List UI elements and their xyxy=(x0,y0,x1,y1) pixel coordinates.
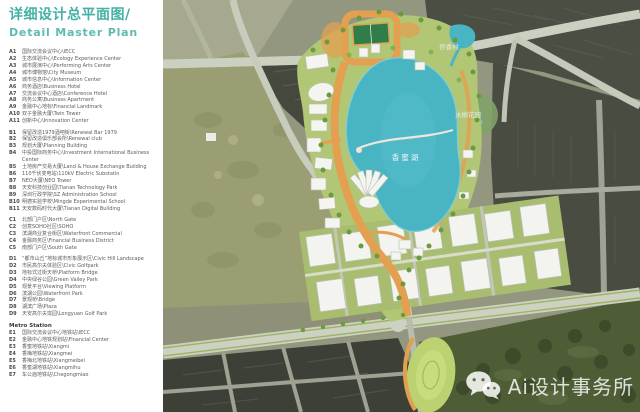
legend-item-id: A2 xyxy=(9,56,22,63)
legend-item: B5土地房产交易大厦\Land & House Exchange Buildin… xyxy=(9,164,159,171)
legend-item: D9天安高尔夫珑园\Longyuan Golf Park xyxy=(9,311,159,318)
legend-item-label: “都市山丘”地标城市形象展示区\Civic Hill Landscape xyxy=(22,256,159,263)
legend-item: B11天安数码时代大厦\Tianan Digital Building xyxy=(9,206,159,213)
legend-item-label: 中投国际商务中心\Investment International Busine… xyxy=(22,150,159,164)
legend-item-label: 土地房产交易大厦\Land & House Exchange Building xyxy=(22,164,159,171)
legend-item-label: 香梅地铁站\Xiangmei xyxy=(22,351,159,358)
legend-item-label: 明德实验学校\Mingde Experimental School xyxy=(22,199,159,206)
legend-item: C2创意SOHO社区\SOHO xyxy=(9,224,159,231)
legend-item: B10明德实验学校\Mingde Experimental School xyxy=(9,199,159,206)
legend-item: C3滨湖商业复合街区\Waterfront Commercial xyxy=(9,231,159,238)
legend-item-id: D4 xyxy=(9,277,22,284)
legend-item-label: 滨湖商业复合街区\Waterfront Commercial xyxy=(22,231,159,238)
legend-item-id: D5 xyxy=(9,284,22,291)
legend-section-E: E1国际交流会议中心地铁站\IECCE2金融中心地铁规划站\Financial … xyxy=(9,330,159,378)
legend-item-id: E1 xyxy=(9,330,22,337)
legend-item: A1国际交流会议中心\IECC xyxy=(9,49,159,56)
legend-item: C5南部门户区\South Gate xyxy=(9,245,159,252)
page-subtitle: Detail Master Plan xyxy=(9,26,159,39)
legend-item-id: A3 xyxy=(9,63,22,70)
legend-item: E3香蜜地铁站\Xiangmi xyxy=(9,344,159,351)
legend-item: E7车公庙地铁站\Chegongmiao xyxy=(9,372,159,379)
legend-item-label: 城市展演中心\Performing Arts Center xyxy=(22,63,159,70)
legend-item-id: C1 xyxy=(9,217,22,224)
legend-item-id: C3 xyxy=(9,231,22,238)
master-plan-map: 侨香村 水榭花园 香蜜湖 Ai设计事务所 xyxy=(163,0,640,412)
legend-item-id: A4 xyxy=(9,70,22,77)
legend-item-label: 商务酒店\Business Hotel xyxy=(22,84,159,91)
legend-item-label: 创新中心\Innovation Center xyxy=(22,118,159,125)
legend-item-label: 金融中心地铁规划站\Financial Center xyxy=(22,337,159,344)
legend-item-id: A10 xyxy=(9,111,22,118)
page-title: 详细设计总平面图/ xyxy=(9,7,159,23)
legend-item: C1北部门户区\North Gate xyxy=(9,217,159,224)
legend-item-label: 市民高尔夫体验区\Civic Golfpark xyxy=(22,263,159,270)
legend-item-id: B9 xyxy=(9,192,22,199)
sports-field xyxy=(352,23,389,45)
legend-item: E4香梅地铁站\Xiangmei xyxy=(9,351,159,358)
legend-item-label: 创意SOHO社区\SOHO xyxy=(22,224,159,231)
legend-item: D4中央绿谷公园\Green Valley Park xyxy=(9,277,159,284)
legend-item-id: D7 xyxy=(9,297,22,304)
viewing-platform xyxy=(356,147,362,153)
legend-item: A4城市博物馆\City Museum xyxy=(9,70,159,77)
legend-item-label: 金融商务区\Financial Business District xyxy=(22,238,159,245)
legend-item-label: 生态体验中心\Ecology Experience Center xyxy=(22,56,159,63)
legend-item-id: C5 xyxy=(9,245,22,252)
legend-item: A5城市信息中心\Information Center xyxy=(9,77,159,84)
legend-item-id: E7 xyxy=(9,372,22,379)
legend-item-id: A6 xyxy=(9,84,22,91)
legend-item-id: C2 xyxy=(9,224,22,231)
legend-item-label: 城市博物馆\City Museum xyxy=(22,70,159,77)
legend-item-id: D2 xyxy=(9,263,22,270)
legend-item-id: A5 xyxy=(9,77,22,84)
legend-section-header: Metro Station xyxy=(9,323,159,329)
legend-item-label: 北部门户区\North Gate xyxy=(22,217,159,224)
label-xiangmi-lake: 香蜜湖 xyxy=(392,152,421,162)
legend-item-id: D9 xyxy=(9,311,22,318)
legend-item-label: 观景平台\Viewing Platform xyxy=(22,284,159,291)
legend-item-id: B8 xyxy=(9,185,22,192)
legend-item-id: A8 xyxy=(9,97,22,104)
legend-item-label: 车公庙地铁站\Chegongmiao xyxy=(22,372,159,379)
legend-item-id: B3 xyxy=(9,143,22,150)
legend-item-id: C4 xyxy=(9,238,22,245)
legend-item: E2金融中心地铁规划站\Financial Center xyxy=(9,337,159,344)
legend-item: B7NEO大厦\NEO Tower xyxy=(9,178,159,185)
legend-item-id: A7 xyxy=(9,91,22,98)
legend-item-id: B1 xyxy=(9,130,22,137)
legend-item-id: A1 xyxy=(9,49,22,56)
legend-list: A1国际交流会议中心\IECCA2生态体验中心\Ecology Experien… xyxy=(9,49,159,378)
legend-item: B9深圳行政学院\SZ Administration School xyxy=(9,192,159,199)
legend-item-id: D3 xyxy=(9,270,22,277)
legend-item-id: B2 xyxy=(9,136,22,143)
legend-item: E1国际交流会议中心地铁站\IECC xyxy=(9,330,159,337)
legend-item-id: E3 xyxy=(9,344,22,351)
legend-item: E5香梅北地铁站\Xiangmeibei xyxy=(9,358,159,365)
legend-item-label: 城市信息中心\Information Center xyxy=(22,77,159,84)
legend-item: A11创新中心\Innovation Center xyxy=(9,118,159,125)
legend-item-id: A9 xyxy=(9,104,22,111)
legend-item: D5观景平台\Viewing Platform xyxy=(9,284,159,291)
legend-panel: 详细设计总平面图/ Detail Master Plan A1国际交流会议中心\… xyxy=(0,0,163,412)
legend-item-id: E4 xyxy=(9,351,22,358)
legend-item: A2生态体验中心\Ecology Experience Center xyxy=(9,56,159,63)
legend-item-label: 南部门户区\South Gate xyxy=(22,245,159,252)
legend-item: B6110千伏变电站\110kV Electric Substatin xyxy=(9,171,159,178)
label-shuixie-garden: 水榭花园 xyxy=(455,110,481,119)
legend-item-id: B7 xyxy=(9,178,22,185)
legend-section-D: D1“都市山丘”地标城市形象展示区\Civic Hill LandscapeD2… xyxy=(9,256,159,318)
legend-item-label: 香蜜地铁站\Xiangmi xyxy=(22,344,159,351)
legend-item-id: B4 xyxy=(9,150,22,164)
legend-item-id: A11 xyxy=(9,118,22,125)
legend-section-B: B1保留改造1979酒吧街\Renewal Bar 1979B2保留改造俱乐部会… xyxy=(9,130,159,213)
legend-item-id: B11 xyxy=(9,206,22,213)
legend-item: D1“都市山丘”地标城市形象展示区\Civic Hill Landscape xyxy=(9,256,159,263)
legend-item: B8天安科技创业园\Tianan Technology Park xyxy=(9,185,159,192)
legend-item: D3地标式过街天桥\Platform Bridge xyxy=(9,270,159,277)
legend-item-label: 地标式过街天桥\Platform Bridge xyxy=(22,270,159,277)
legend-item-label: 天安科技创业园\Tianan Technology Park xyxy=(22,185,159,192)
legend-item-id: D8 xyxy=(9,304,22,311)
legend-item-id: E2 xyxy=(9,337,22,344)
legend-item: A6商务酒店\Business Hotel xyxy=(9,84,159,91)
legend-item: A3城市展演中心\Performing Arts Center xyxy=(9,63,159,70)
map-canvas: 侨香村 水榭花园 香蜜湖 xyxy=(163,0,640,412)
legend-item: E6香蜜湖地铁站\Xiangmihu xyxy=(9,365,159,372)
legend-item: C4金融商务区\Financial Business District xyxy=(9,238,159,245)
legend-item-label: 天安高尔夫珑园\Longyuan Golf Park xyxy=(22,311,159,318)
label-qiaoxiang-village: 侨香村 xyxy=(439,42,459,51)
master-plan-page: 详细设计总平面图/ Detail Master Plan A1国际交流会议中心\… xyxy=(0,0,640,412)
legend-item-id: D6 xyxy=(9,291,22,298)
legend-item-id: E6 xyxy=(9,365,22,372)
legend-item-label: 国际交流会议中心地铁站\IECC xyxy=(22,330,159,337)
legend-section-A: A1国际交流会议中心\IECCA2生态体验中心\Ecology Experien… xyxy=(9,49,159,125)
wechat-icon xyxy=(465,370,501,400)
resort-building xyxy=(206,133,216,141)
legend-item-label: 香梅北地铁站\Xiangmeibei xyxy=(22,358,159,365)
legend-item: B4中投国际商务中心\Investment International Busi… xyxy=(9,150,159,164)
legend-item-id: B5 xyxy=(9,164,22,171)
legend-item-id: B6 xyxy=(9,171,22,178)
legend-section-C: C1北部门户区\North GateC2创意SOHO社区\SOHOC3滨湖商业复… xyxy=(9,217,159,252)
legend-item-id: E5 xyxy=(9,358,22,365)
legend-item-label: 110千伏变电站\110kV Electric Substatin xyxy=(22,171,159,178)
legend-item-label: 深圳行政学院\SZ Administration School xyxy=(22,192,159,199)
legend-item-label: 中央绿谷公园\Green Valley Park xyxy=(22,277,159,284)
legend-item-label: 香蜜湖地铁站\Xiangmihu xyxy=(22,365,159,372)
legend-item-label: NEO大厦\NEO Tower xyxy=(22,178,159,185)
legend-item-label: 天安数码时代大厦\Tianan Digital Building xyxy=(22,206,159,213)
legend-item-id: D1 xyxy=(9,256,22,263)
legend-item-label: 国际交流会议中心\IECC xyxy=(22,49,159,56)
watermark-text: Ai设计事务所 xyxy=(508,371,634,400)
legend-item: D2市民高尔夫体验区\Civic Golfpark xyxy=(9,263,159,270)
watermark: Ai设计事务所 xyxy=(465,370,634,400)
legend-item-id: B10 xyxy=(9,199,22,206)
